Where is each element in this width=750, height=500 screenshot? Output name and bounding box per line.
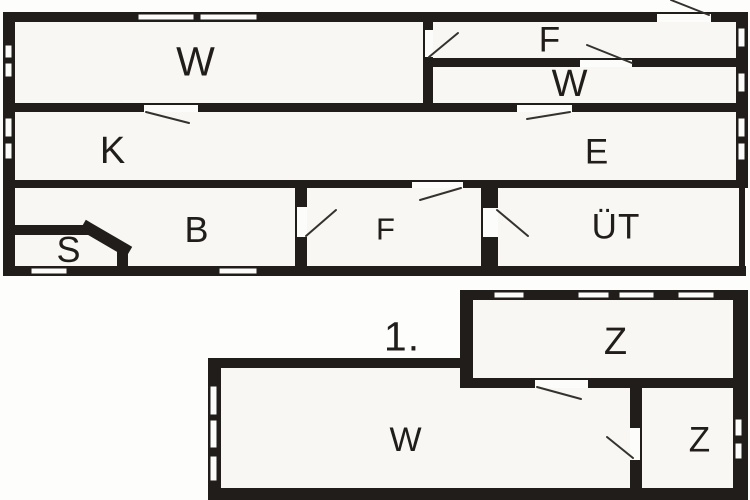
floor-plan-svg <box>0 0 750 500</box>
window <box>494 292 525 299</box>
window <box>210 420 218 449</box>
room-label-W: W <box>389 423 422 457</box>
window <box>678 292 715 299</box>
door-opening-edge <box>144 103 198 105</box>
floor-plan-canvas: WFWKEBSFÜT1.ZWZ <box>0 0 750 500</box>
window <box>200 14 258 21</box>
wall <box>208 358 473 368</box>
window <box>738 118 746 138</box>
window <box>210 386 218 416</box>
room-label-S: S <box>56 232 81 268</box>
window <box>5 143 13 160</box>
room-label-1: 1. <box>384 317 420 358</box>
window <box>219 268 258 275</box>
window <box>738 28 746 48</box>
wall <box>3 180 748 188</box>
window <box>5 118 13 138</box>
wall <box>733 290 748 500</box>
door-opening-edge <box>295 207 297 237</box>
door-opening-edge <box>481 208 483 237</box>
wall <box>208 488 748 500</box>
window <box>578 292 610 299</box>
wall <box>460 290 473 388</box>
door-opening-edge <box>535 378 588 380</box>
wall <box>3 12 748 22</box>
window <box>738 73 746 93</box>
room-fill <box>642 388 733 488</box>
window <box>735 443 743 460</box>
room-label-E: E <box>585 135 609 170</box>
room-label-K: K <box>100 132 126 170</box>
room-label-ÜT: ÜT <box>592 210 641 245</box>
window <box>738 143 746 161</box>
wall <box>15 103 736 112</box>
window <box>735 419 743 437</box>
room-label-Z: Z <box>604 323 628 361</box>
room-label-W: W <box>552 65 589 103</box>
window <box>210 456 218 482</box>
window <box>5 63 13 78</box>
room-label-F: F <box>376 214 396 245</box>
wall <box>460 378 733 388</box>
door-opening <box>481 208 498 237</box>
wall <box>739 184 745 268</box>
door-opening-edge <box>640 428 642 460</box>
door-opening-edge <box>412 180 463 182</box>
room-label-W: W <box>176 42 216 83</box>
wall <box>3 266 746 276</box>
window <box>619 292 655 299</box>
window <box>5 45 13 59</box>
window <box>138 14 195 21</box>
door-opening-edge <box>423 30 425 57</box>
room-label-F: F <box>539 23 561 58</box>
room-label-Z: Z <box>689 423 711 458</box>
room-label-B: B <box>184 212 209 248</box>
